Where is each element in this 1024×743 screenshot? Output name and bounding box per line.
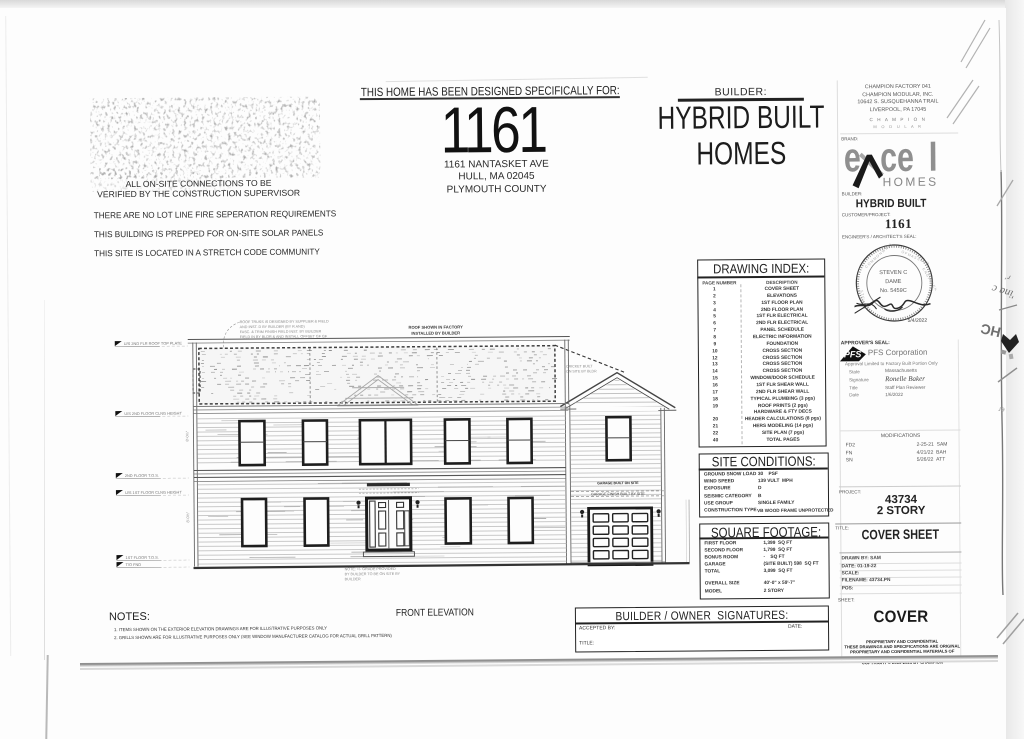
svg-text:PFS: PFS [844,349,862,359]
svg-text:DAME: DAME [885,279,901,285]
svg-text:CRICKET BUILT: CRICKET BUILT [566,364,593,368]
svg-text:FASC. & TRIM FINISH FIELD INST: FASC. & TRIM FINISH FIELD INST. BY BUILD… [240,329,322,334]
svg-text:GARAGE FINISH BUILT BY SITE: GARAGE FINISH BUILT BY SITE [591,492,645,496]
svg-text:No. 5459C: No. 5459C [880,288,907,294]
svg-text:r': r' [1004,272,1012,282]
svg-text:STEVEN C: STEVEN C [879,270,907,276]
svg-text:ce: ce [880,138,914,181]
svg-text:2ND FLOOR T.O.S.: 2ND FLOOR T.O.S. [125,473,159,478]
svg-text:BUILDER: BUILDER [345,577,361,581]
svg-text:T/O FND: T/O FND [125,562,141,567]
svg-text:ROOF SHOWN IN FACTORY: ROOF SHOWN IN FACTORY [408,324,463,329]
svg-text:U/S 2ND FLR ROOF TOP PLATE: U/S 2ND FLR ROOF TOP PLATE [124,341,183,346]
svg-text:AND INST. D BY BUILDER (BY: AND INST. D BY BUILDER (BY R AND) [240,325,305,330]
svg-text:'ina c: 'ina c [990,282,1017,301]
svg-text:HC: HC [979,321,1002,341]
svg-text:NOTE: +/- GRADE PROVIDED: NOTE: +/- GRADE PROVIDED [345,567,396,571]
svg-text:1ST FLOOR T.O.S.: 1ST FLOOR T.O.S. [125,555,158,560]
svg-text:INSTALLED BY BUILDER: INSTALLED BY BUILDER [411,330,460,335]
svg-text:GARAGE BUILT ON SITE: GARAGE BUILT ON SITE [597,481,639,485]
svg-text:BY BUILDER TO BE ON SITE BY: BY BUILDER TO BE ON SITE BY [345,572,401,576]
svg-text:ON SITE BY BLDR: ON SITE BY BLDR [566,369,597,373]
svg-text:ROOF TRUSS IS DESIGNED BY SUPP: ROOF TRUSS IS DESIGNED BY SUPPLIER & FIE… [240,319,329,324]
svg-text:8'-0½": 8'-0½" [186,511,190,522]
svg-text:U/S 2ND FLOOR CLNG HEIGHT: U/S 2ND FLOOR CLNG HEIGHT [124,411,182,416]
svg-text:U/S 1ST FLOOR CLNG HEIGHT: U/S 1ST FLOOR CLNG HEIGHT [125,490,182,495]
svg-text:8'-0½": 8'-0½" [185,430,189,441]
svg-text:er: er [997,405,1005,413]
